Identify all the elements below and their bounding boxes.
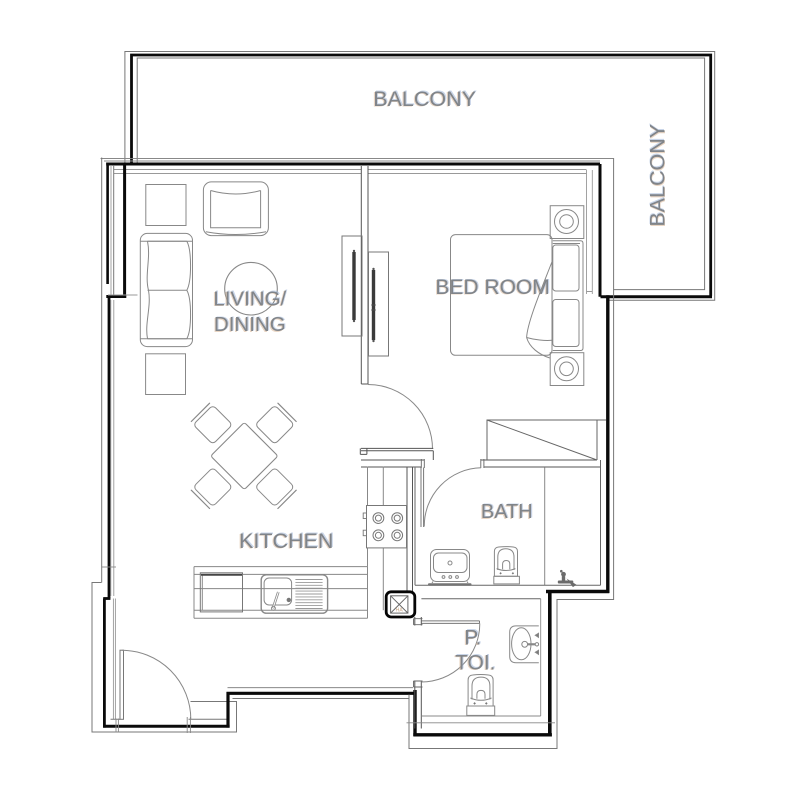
svg-text:DINING: DINING (214, 313, 286, 336)
svg-text:LIVING/: LIVING/ (213, 287, 286, 310)
svg-text:TOI.: TOI. (455, 651, 495, 674)
svg-text:KITCHEN: KITCHEN (239, 529, 333, 553)
svg-text:BATH: BATH (481, 501, 533, 523)
svg-text:HA: HA (396, 608, 404, 614)
svg-text:BALCONY: BALCONY (646, 124, 670, 227)
svg-text:BED ROOM: BED ROOM (435, 276, 549, 299)
svg-text:P.: P. (464, 626, 481, 649)
svg-text:BALCONY: BALCONY (373, 87, 476, 111)
